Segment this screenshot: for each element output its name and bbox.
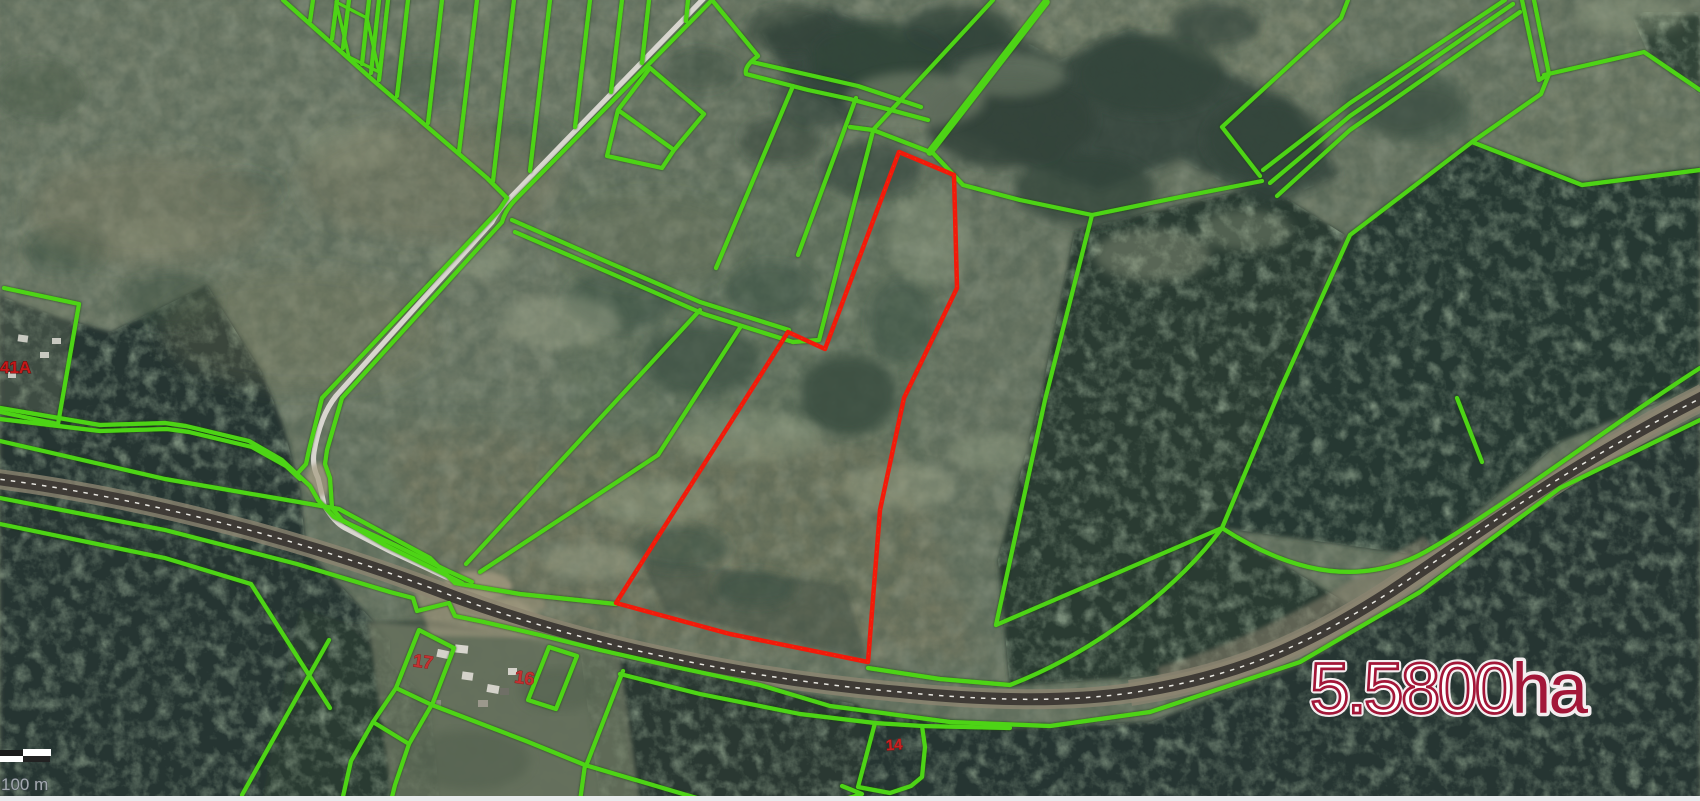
svg-text:17: 17	[412, 650, 435, 673]
svg-text:100 m: 100 m	[1, 775, 48, 794]
svg-text:14: 14	[885, 736, 903, 754]
svg-text:5.5800ha: 5.5800ha	[1310, 650, 1588, 729]
svg-text:16: 16	[513, 667, 536, 690]
svg-text:41A: 41A	[0, 358, 31, 377]
